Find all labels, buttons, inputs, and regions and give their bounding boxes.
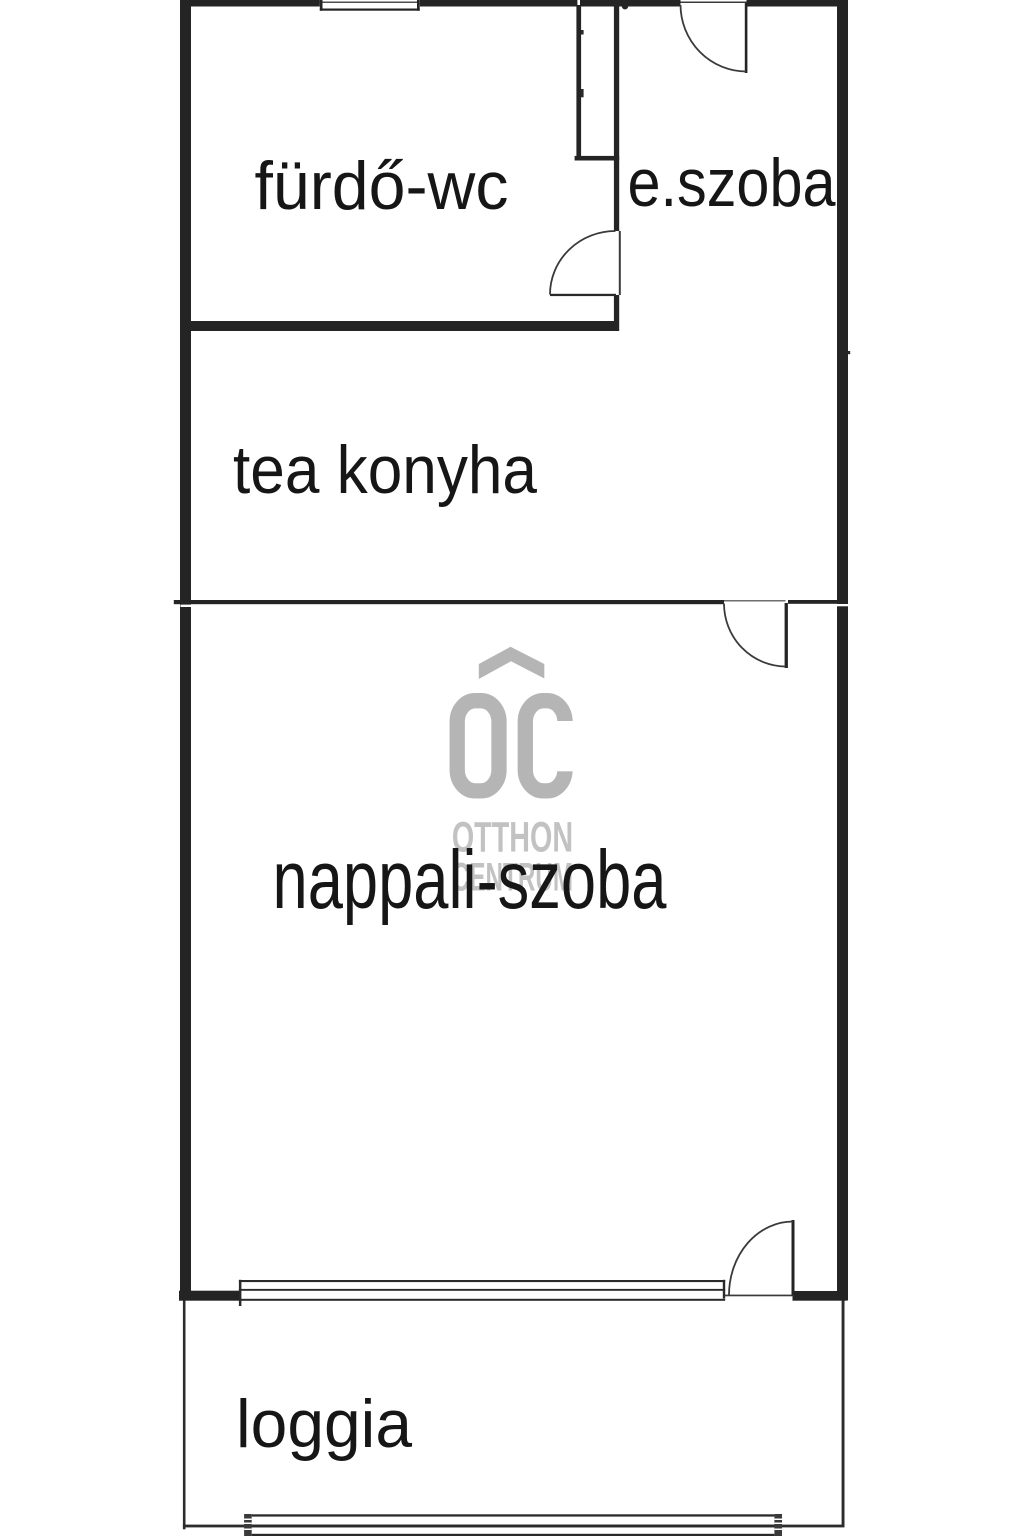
svg-text:e.szoba: e.szoba [628,145,836,221]
svg-text:nappali-szoba: nappali-szoba [273,833,668,926]
svg-text:tea konyha: tea konyha [233,432,537,508]
svg-text:loggia: loggia [236,1386,412,1462]
svg-text:fürdő-wc: fürdő-wc [255,148,509,224]
